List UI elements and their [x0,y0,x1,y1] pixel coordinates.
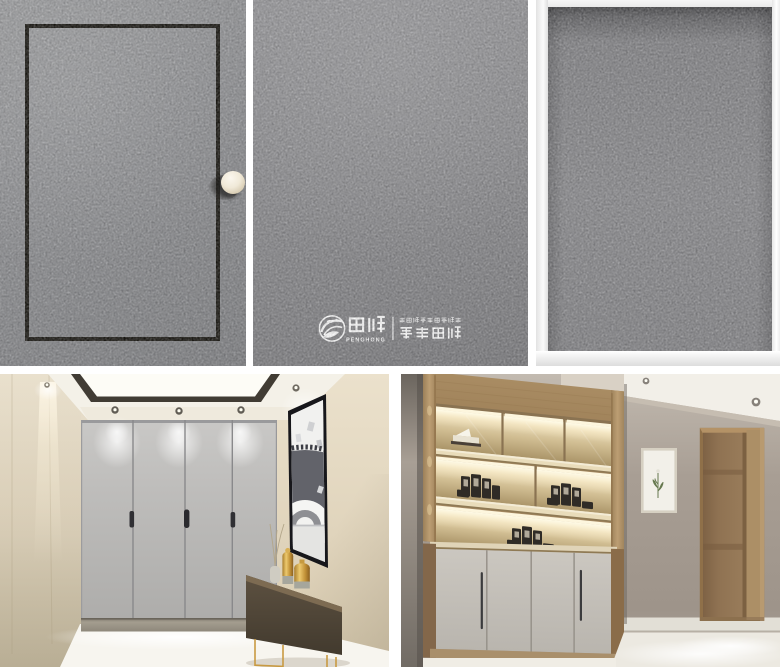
svg-text:PENGHONG: PENGHONG [346,338,386,344]
